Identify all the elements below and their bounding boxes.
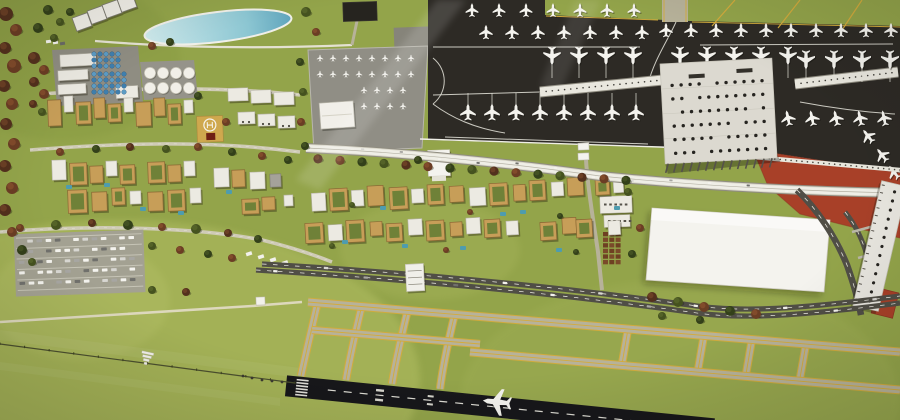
airport-model-scene bbox=[0, 0, 900, 420]
airport-model-photo bbox=[0, 0, 900, 420]
layers bbox=[0, 0, 900, 420]
reflection-glare bbox=[0, 0, 900, 420]
